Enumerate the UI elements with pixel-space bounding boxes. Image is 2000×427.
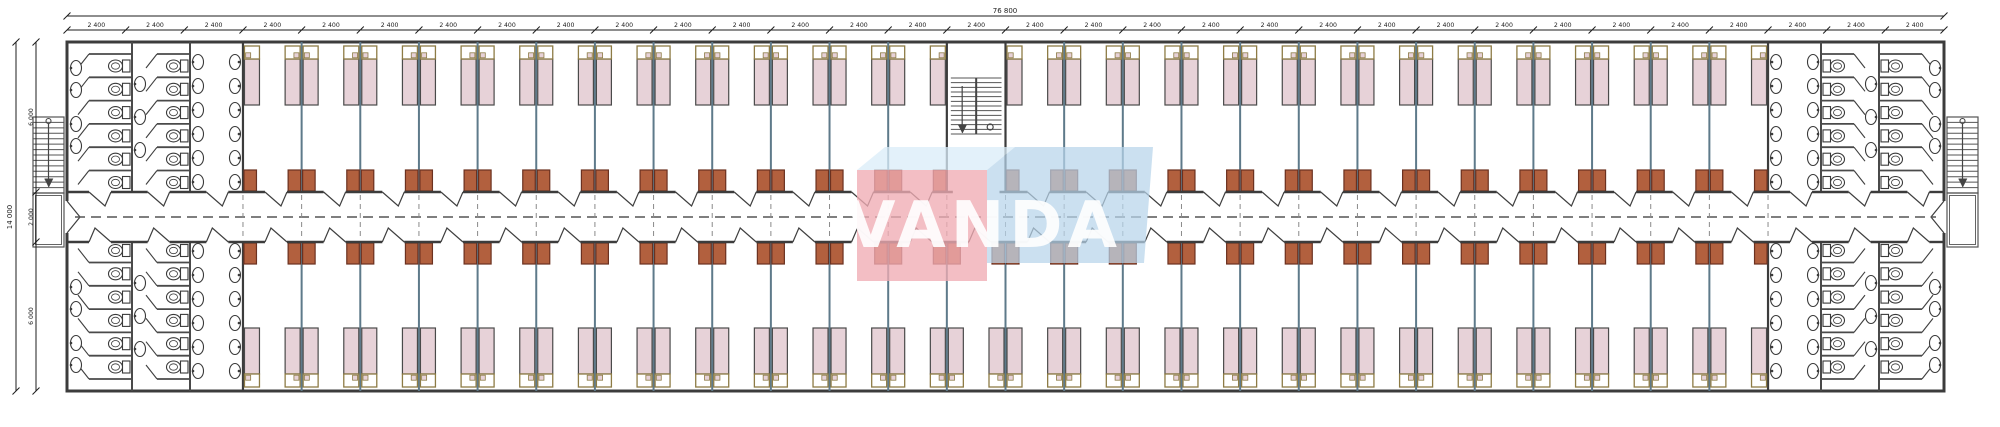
sink-icon bbox=[1866, 276, 1878, 291]
toilet-bowl bbox=[1889, 314, 1903, 326]
sink-icon bbox=[229, 79, 240, 94]
bed-pillow bbox=[598, 375, 603, 380]
toilet-icon bbox=[1881, 83, 1903, 95]
bed bbox=[772, 328, 787, 387]
sink-faucet bbox=[1817, 157, 1820, 160]
toilet-tank bbox=[1823, 361, 1831, 373]
desk bbox=[537, 243, 550, 264]
bed bbox=[1752, 328, 1767, 387]
bed-pillow bbox=[1174, 375, 1179, 380]
sink-icon bbox=[134, 77, 146, 92]
bed bbox=[1341, 328, 1356, 387]
desk bbox=[523, 170, 536, 191]
bed-mattress bbox=[637, 328, 652, 374]
desk bbox=[1300, 170, 1313, 191]
bed-pillow bbox=[891, 53, 896, 58]
toilet-tank bbox=[181, 268, 189, 280]
toilet-icon bbox=[1881, 60, 1903, 72]
sink-icon bbox=[1771, 268, 1782, 283]
sink-icon bbox=[134, 110, 146, 125]
toilet-icon bbox=[167, 107, 189, 119]
bed bbox=[1282, 46, 1297, 105]
dimension-label: 2 400 bbox=[1554, 22, 1572, 29]
bed-mattress bbox=[520, 59, 535, 105]
bed-mattress bbox=[1652, 328, 1667, 374]
toilet-icon bbox=[167, 130, 189, 142]
sink-icon bbox=[134, 276, 146, 291]
bed-pillow bbox=[1419, 375, 1424, 380]
toilet-bowl bbox=[1831, 245, 1845, 257]
bed bbox=[1282, 328, 1297, 387]
desk bbox=[464, 243, 477, 264]
toilet-bowl bbox=[167, 291, 181, 303]
dimension-label: 2 400 bbox=[263, 22, 281, 29]
toilet-bowl bbox=[1889, 60, 1903, 72]
toilet-bowl bbox=[1889, 245, 1903, 257]
sink-faucet bbox=[238, 346, 241, 349]
bed-pillow bbox=[480, 53, 485, 58]
sink-faucet bbox=[70, 308, 73, 311]
bed bbox=[1693, 328, 1708, 387]
desk bbox=[1168, 243, 1181, 264]
toilet-icon bbox=[109, 291, 131, 303]
toilet-icon bbox=[109, 338, 131, 350]
bed-mattress bbox=[831, 59, 846, 105]
sink-icon bbox=[1930, 358, 1942, 373]
bed bbox=[362, 46, 377, 105]
bed bbox=[813, 46, 828, 105]
height-segment-label: 6 000 bbox=[28, 108, 35, 126]
toilet-bowl bbox=[1889, 268, 1903, 280]
toilet-tank bbox=[123, 338, 131, 350]
desk bbox=[244, 170, 257, 191]
bed-pillow bbox=[1712, 53, 1717, 58]
bed-pillow bbox=[304, 53, 309, 58]
toilet-bowl bbox=[109, 245, 123, 257]
bed-pillow bbox=[950, 375, 955, 380]
external-staircase bbox=[33, 117, 64, 247]
toilet-bowl bbox=[1831, 107, 1845, 119]
bed-pillow bbox=[1067, 375, 1072, 380]
bed bbox=[714, 46, 729, 105]
bed-pillow bbox=[998, 375, 1003, 380]
bed bbox=[538, 328, 553, 387]
bed bbox=[1594, 46, 1609, 105]
bed-pillow bbox=[656, 53, 661, 58]
bed bbox=[1183, 46, 1198, 105]
bed-pillow bbox=[1477, 53, 1482, 58]
bed bbox=[1224, 328, 1239, 387]
toilet-tank bbox=[1823, 314, 1831, 326]
bed-pillow bbox=[1350, 53, 1355, 58]
bed bbox=[1359, 46, 1374, 105]
toilet-bowl bbox=[1889, 130, 1903, 142]
sink-faucet bbox=[134, 83, 137, 86]
desk bbox=[1344, 243, 1357, 264]
bed bbox=[1165, 328, 1180, 387]
bed bbox=[402, 328, 417, 387]
sink-faucet bbox=[192, 85, 195, 88]
sink-faucet bbox=[134, 149, 137, 152]
bed-pillow bbox=[1467, 375, 1472, 380]
dimension-label: 2 400 bbox=[1495, 22, 1513, 29]
toilet-icon bbox=[1881, 130, 1903, 142]
bed bbox=[696, 46, 711, 105]
desk bbox=[1755, 170, 1768, 191]
toilet-icon bbox=[1881, 291, 1903, 303]
dimension-label: 2 400 bbox=[1789, 22, 1807, 29]
toilet-tank bbox=[123, 314, 131, 326]
desk bbox=[361, 170, 374, 191]
desk bbox=[288, 243, 301, 264]
watermark-text: VANDA bbox=[846, 189, 1122, 263]
bed-pillow bbox=[880, 375, 885, 380]
toilet-bowl bbox=[1831, 361, 1845, 373]
bed-pillow bbox=[470, 53, 475, 58]
desk bbox=[1579, 170, 1592, 191]
bed-pillow bbox=[1301, 375, 1306, 380]
bed-pillow bbox=[294, 53, 299, 58]
bed-pillow bbox=[1184, 375, 1189, 380]
desk bbox=[1403, 170, 1416, 191]
bed-pillow bbox=[1584, 53, 1589, 58]
external-staircase bbox=[1947, 117, 1978, 247]
desk bbox=[816, 170, 829, 191]
bed-mattress bbox=[1242, 59, 1257, 105]
desk bbox=[1520, 170, 1533, 191]
bed-pillow bbox=[1595, 375, 1600, 380]
desk bbox=[303, 243, 316, 264]
bed bbox=[479, 328, 494, 387]
sink-icon bbox=[70, 83, 82, 98]
sink-icon bbox=[1930, 280, 1942, 295]
toilet-icon bbox=[109, 314, 131, 326]
bed-mattress bbox=[714, 59, 729, 105]
sink-icon bbox=[229, 55, 240, 70]
bed bbox=[1359, 328, 1374, 387]
desk bbox=[1461, 170, 1474, 191]
toilet-icon bbox=[1881, 107, 1903, 119]
sink-faucet bbox=[192, 181, 195, 184]
desk bbox=[772, 243, 785, 264]
bed-pillow bbox=[1056, 375, 1061, 380]
bed-pillow bbox=[646, 53, 651, 58]
bed-pillow bbox=[1536, 375, 1541, 380]
sink-icon bbox=[229, 316, 240, 331]
bed bbox=[1300, 328, 1315, 387]
toilet-bowl bbox=[167, 338, 181, 350]
sink-icon bbox=[229, 244, 240, 259]
toilet-icon bbox=[1881, 153, 1903, 165]
bed-pillow bbox=[422, 53, 427, 58]
toilet-icon bbox=[1823, 153, 1845, 165]
bed-mattress bbox=[362, 328, 377, 374]
bed bbox=[637, 46, 652, 105]
desk bbox=[1652, 243, 1665, 264]
bed-mattress bbox=[402, 59, 417, 105]
dimension-label: 2 400 bbox=[146, 22, 164, 29]
sink-icon bbox=[1771, 292, 1782, 307]
bed bbox=[1300, 46, 1315, 105]
bed-mattress bbox=[655, 328, 670, 374]
sink-faucet bbox=[238, 322, 241, 325]
toilet-icon bbox=[1823, 338, 1845, 350]
toilet-icon bbox=[167, 153, 189, 165]
dimension-label: 2 400 bbox=[205, 22, 223, 29]
sink-icon bbox=[70, 61, 82, 76]
bed bbox=[244, 46, 259, 105]
bed-pillow bbox=[832, 375, 837, 380]
sink-faucet bbox=[70, 89, 73, 92]
desk bbox=[479, 243, 492, 264]
sink-faucet bbox=[192, 322, 195, 325]
bed-pillow bbox=[1595, 53, 1600, 58]
sink-faucet bbox=[1939, 89, 1942, 92]
bed bbox=[637, 328, 652, 387]
bed-mattress bbox=[1341, 59, 1356, 105]
bed-pillow bbox=[1702, 53, 1707, 58]
sink-icon bbox=[192, 244, 204, 259]
sink-icon bbox=[1866, 77, 1878, 92]
sink-icon bbox=[229, 103, 240, 118]
toilet-tank bbox=[181, 291, 189, 303]
bed-pillow bbox=[1360, 53, 1365, 58]
bed-pillow bbox=[353, 375, 358, 380]
sink-icon bbox=[1771, 244, 1782, 259]
bed bbox=[538, 46, 553, 105]
bed-pillow bbox=[1760, 375, 1765, 380]
toilet-icon bbox=[167, 314, 189, 326]
bed bbox=[872, 328, 887, 387]
toilet-tank bbox=[181, 130, 189, 142]
dimension-label: 2 400 bbox=[1261, 22, 1279, 29]
sink-faucet bbox=[134, 116, 137, 119]
total-width-label: 76 800 bbox=[993, 7, 1018, 15]
desk bbox=[1285, 243, 1298, 264]
sink-faucet bbox=[1817, 109, 1820, 112]
bed-pillow bbox=[1126, 53, 1131, 58]
desk bbox=[1520, 243, 1533, 264]
bed-mattress bbox=[930, 59, 945, 105]
desk bbox=[347, 243, 360, 264]
desk bbox=[1593, 170, 1606, 191]
desk bbox=[596, 243, 609, 264]
bed bbox=[244, 328, 259, 387]
bed bbox=[1535, 46, 1550, 105]
toilet-tank bbox=[181, 245, 189, 257]
desk bbox=[655, 170, 668, 191]
desk bbox=[1461, 243, 1474, 264]
bed-pillow bbox=[1350, 375, 1355, 380]
sink-icon bbox=[192, 151, 204, 166]
desk bbox=[288, 170, 301, 191]
sink-faucet bbox=[238, 181, 241, 184]
desk bbox=[1300, 243, 1313, 264]
bed bbox=[1594, 328, 1609, 387]
toilet-bowl bbox=[1831, 314, 1845, 326]
sink-faucet bbox=[1817, 274, 1820, 277]
bed-pillow bbox=[1067, 53, 1072, 58]
sink-icon bbox=[70, 139, 82, 154]
bed-mattress bbox=[831, 328, 846, 374]
toilet-icon bbox=[167, 60, 189, 72]
bed-mattress bbox=[1359, 59, 1374, 105]
toilet-tank bbox=[1823, 338, 1831, 350]
bed-pillow bbox=[763, 53, 768, 58]
toilet-tank bbox=[1823, 83, 1831, 95]
toilet-bowl bbox=[167, 245, 181, 257]
sink-faucet bbox=[1817, 133, 1820, 136]
sink-faucet bbox=[1817, 250, 1820, 253]
toilet-icon bbox=[1823, 107, 1845, 119]
toilet-bowl bbox=[109, 153, 123, 165]
bed-pillow bbox=[539, 375, 544, 380]
bed-mattress bbox=[344, 328, 359, 374]
toilet-tank bbox=[1823, 130, 1831, 142]
sink-faucet bbox=[192, 157, 195, 160]
sink-faucet bbox=[1939, 286, 1942, 289]
toilet-bowl bbox=[109, 268, 123, 280]
bed-mattress bbox=[772, 59, 787, 105]
desk bbox=[479, 170, 492, 191]
sink-faucet bbox=[1771, 133, 1774, 136]
toilet-bowl bbox=[1889, 291, 1903, 303]
desk bbox=[1579, 243, 1592, 264]
dimension-label: 2 400 bbox=[674, 22, 692, 29]
sink-faucet bbox=[1771, 298, 1774, 301]
bed bbox=[813, 328, 828, 387]
bed bbox=[1711, 46, 1726, 105]
desk bbox=[699, 170, 712, 191]
toilet-bowl bbox=[1831, 153, 1845, 165]
bed-mattress bbox=[1418, 328, 1433, 374]
sink-icon bbox=[229, 175, 240, 190]
sink-faucet bbox=[1817, 322, 1820, 325]
toilet-icon bbox=[109, 268, 131, 280]
bed-mattress bbox=[362, 59, 377, 105]
bed-mattress bbox=[696, 59, 711, 105]
desk bbox=[1182, 170, 1195, 191]
bed-mattress bbox=[402, 328, 417, 374]
sink-faucet bbox=[1939, 364, 1942, 367]
sink-icon bbox=[192, 175, 204, 190]
bed-mattress bbox=[1007, 328, 1022, 374]
bed bbox=[420, 46, 435, 105]
bed-mattress bbox=[1458, 328, 1473, 374]
sink-faucet bbox=[192, 250, 195, 253]
bed-mattress bbox=[1124, 328, 1139, 374]
dimension-label: 2 400 bbox=[381, 22, 399, 29]
dimension-label: 2 400 bbox=[850, 22, 868, 29]
sink-faucet bbox=[134, 315, 137, 318]
bed-mattress bbox=[303, 328, 318, 374]
bed-mattress bbox=[1106, 328, 1121, 374]
sink-faucet bbox=[238, 157, 241, 160]
sink-faucet bbox=[1771, 322, 1774, 325]
desk bbox=[1168, 170, 1181, 191]
bed bbox=[696, 328, 711, 387]
bed bbox=[285, 328, 300, 387]
bed bbox=[420, 328, 435, 387]
bed-pillow bbox=[646, 375, 651, 380]
toilet-icon bbox=[109, 83, 131, 95]
sink-faucet bbox=[238, 370, 241, 373]
bed-pillow bbox=[1174, 53, 1179, 58]
bed-pillow bbox=[1301, 53, 1306, 58]
toilet-icon bbox=[1823, 314, 1845, 326]
bed-mattress bbox=[1183, 328, 1198, 374]
bed-pillow bbox=[529, 53, 534, 58]
bed bbox=[1693, 46, 1708, 105]
bed bbox=[1007, 46, 1022, 105]
sink-icon bbox=[1808, 340, 1820, 355]
bed bbox=[520, 328, 535, 387]
bed-mattress bbox=[948, 328, 963, 374]
bed-pillow bbox=[363, 53, 368, 58]
bed-pillow bbox=[1243, 53, 1248, 58]
bed-mattress bbox=[344, 59, 359, 105]
sink-faucet bbox=[1771, 109, 1774, 112]
desk bbox=[581, 170, 594, 191]
dimension-label: 2 400 bbox=[498, 22, 516, 29]
sink-faucet bbox=[192, 133, 195, 136]
dimension-label: 2 400 bbox=[1847, 22, 1865, 29]
desk bbox=[405, 170, 418, 191]
bed bbox=[578, 46, 593, 105]
desk bbox=[1241, 170, 1254, 191]
entry-landing-inner bbox=[1950, 196, 1976, 245]
bed-pillow bbox=[587, 53, 592, 58]
bed-pillow bbox=[1008, 53, 1013, 58]
desk bbox=[1637, 243, 1650, 264]
toilet-bowl bbox=[1831, 83, 1845, 95]
desk bbox=[523, 243, 536, 264]
bed-mattress bbox=[520, 328, 535, 374]
sink-icon bbox=[1808, 55, 1820, 70]
bed bbox=[1165, 46, 1180, 105]
toilet-bowl bbox=[1831, 268, 1845, 280]
sink-icon bbox=[70, 280, 82, 295]
bed bbox=[989, 328, 1004, 387]
bed-pillow bbox=[774, 375, 779, 380]
bed-mattress bbox=[1693, 328, 1708, 374]
bed-mattress bbox=[637, 59, 652, 105]
desk bbox=[1696, 170, 1709, 191]
bed-mattress bbox=[872, 328, 887, 374]
bed-mattress bbox=[1400, 59, 1415, 105]
desk bbox=[1476, 243, 1489, 264]
bed-mattress bbox=[1476, 59, 1491, 105]
bed bbox=[402, 46, 417, 105]
bed-mattress bbox=[714, 328, 729, 374]
sink-faucet bbox=[70, 364, 73, 367]
bed-mattress bbox=[461, 328, 476, 374]
toilet-icon bbox=[1823, 60, 1845, 72]
sink-icon bbox=[229, 268, 240, 283]
sink-faucet bbox=[238, 133, 241, 136]
toilet-bowl bbox=[1831, 60, 1845, 72]
vanda-watermark: VANDA bbox=[846, 147, 1153, 281]
toilet-bowl bbox=[109, 338, 123, 350]
bed-pillow bbox=[480, 375, 485, 380]
bed-pillow bbox=[1243, 375, 1248, 380]
bed-pillow bbox=[1702, 375, 1707, 380]
bed-mattress bbox=[1224, 328, 1239, 374]
sink-icon bbox=[1930, 139, 1942, 154]
bed bbox=[344, 328, 359, 387]
bed-mattress bbox=[1693, 59, 1708, 105]
dimension-label: 2 400 bbox=[1026, 22, 1044, 29]
